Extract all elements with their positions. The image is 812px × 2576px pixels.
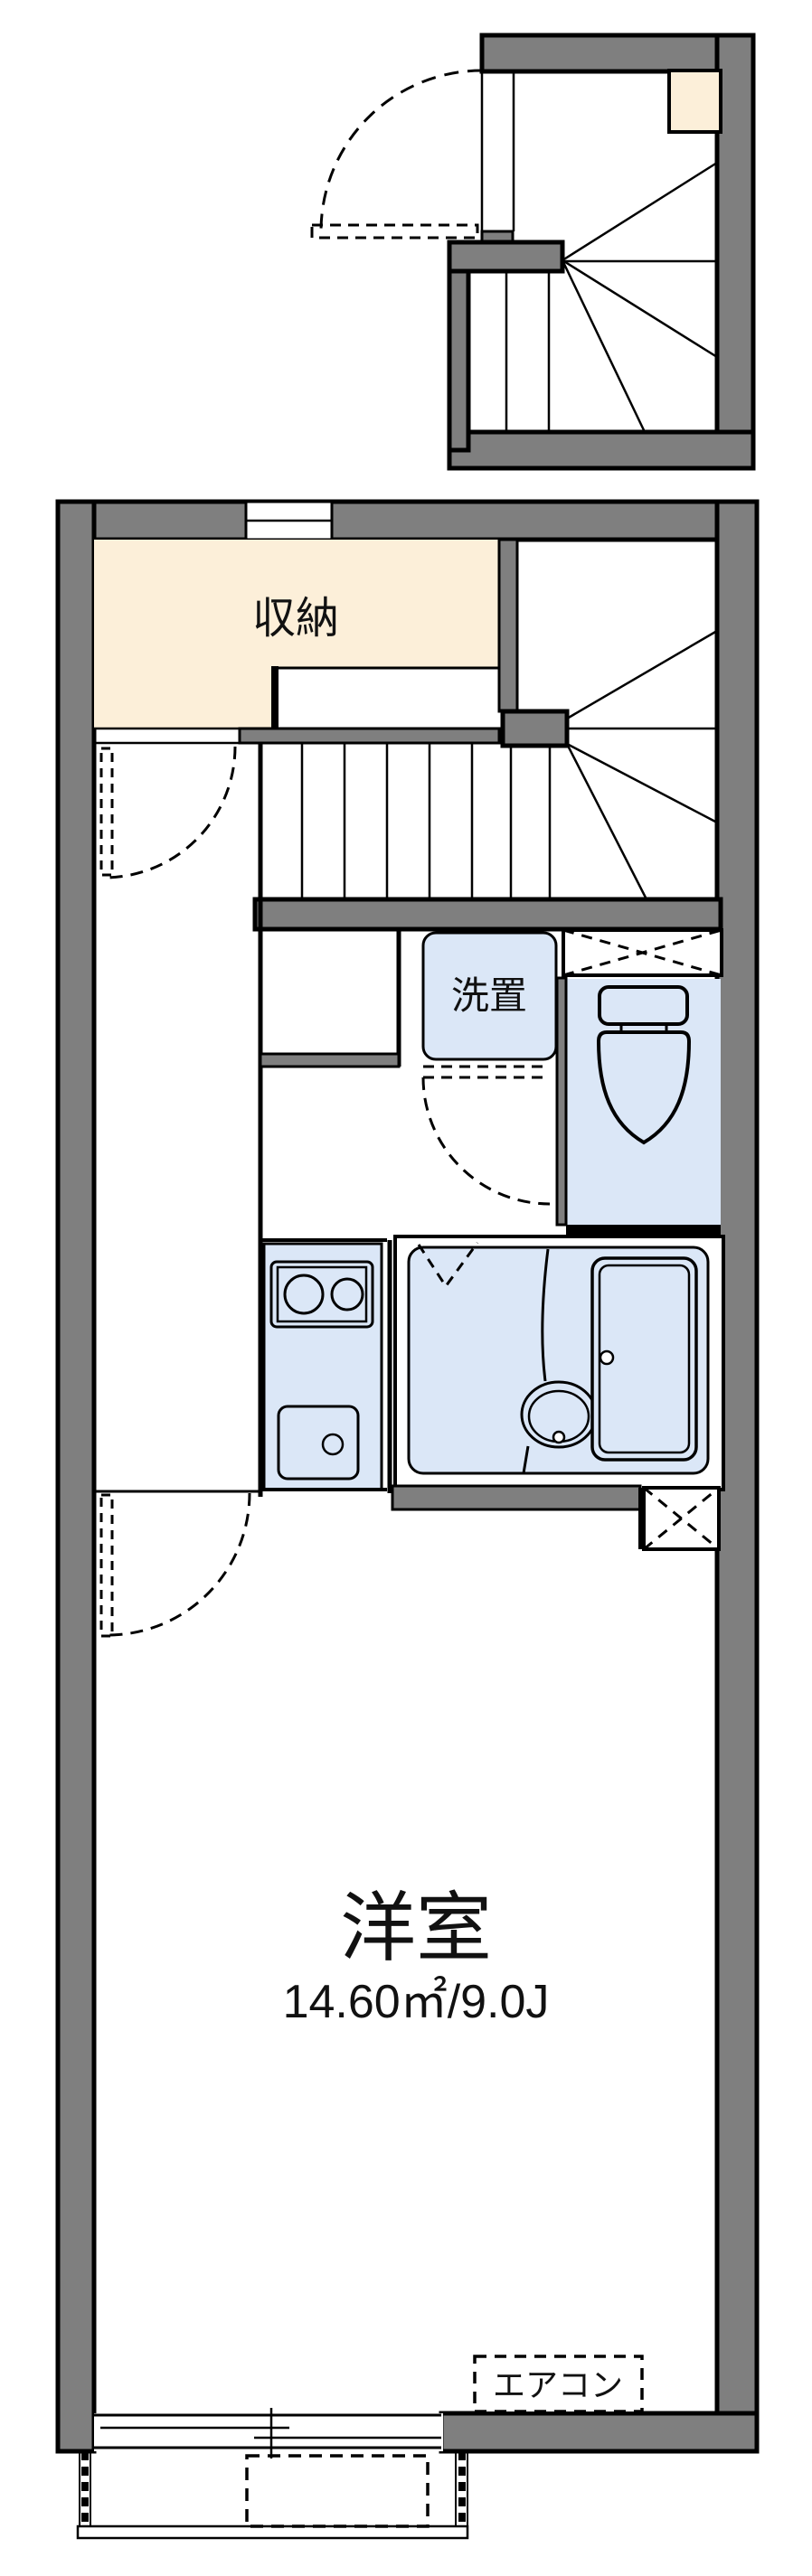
closet: 収納: [94, 540, 499, 878]
stair-treads-2f: [302, 743, 550, 899]
wall: [482, 35, 753, 71]
outdoor-unit-space: [247, 2456, 428, 2526]
wall: [58, 502, 94, 2451]
closet-door-leaf: [101, 748, 112, 875]
bathtub-drain: [600, 1351, 613, 1364]
room-door-leaf: [101, 1495, 112, 1636]
floor-plan-page: 収納: [0, 0, 812, 2576]
toilet-side-wall: [557, 978, 566, 1225]
basin-drain: [553, 1432, 564, 1443]
window-top: [246, 502, 332, 540]
main-unit: 収納: [58, 502, 757, 2538]
toilet-bottom-wall: [566, 1225, 721, 1235]
closet-lower-section: [275, 668, 499, 729]
stair-treads-1f: [506, 163, 717, 432]
washroom-stub-wall: [260, 1054, 399, 1067]
wall: [441, 2413, 757, 2451]
bathroom: [392, 1236, 723, 1509]
room-area-label: 14.60㎡/9.0J: [283, 1975, 550, 2028]
wall-under-stairs: [255, 899, 721, 929]
toilet-tank: [600, 987, 687, 1024]
bathroom-bottom-wall: [392, 1486, 640, 1509]
stair-newel-wall: [503, 711, 567, 746]
kitchen-sink: [279, 1406, 358, 1479]
aircon-label: エアコン: [493, 2366, 623, 2403]
stove-burner: [285, 1275, 323, 1313]
laundry-space: 洗置: [423, 933, 556, 1059]
kitchen: [260, 1240, 390, 1493]
balcony: [78, 2451, 467, 2538]
closet-label: 収納: [252, 595, 339, 643]
wall: [449, 432, 753, 468]
window-bottom-sliding: [94, 2408, 443, 2458]
toilet-door-swing-arc: [423, 1077, 550, 1204]
entrance-step-box: [669, 71, 721, 132]
western-room: 洋室 14.60㎡/9.0J エアコン: [94, 1491, 642, 2411]
stove-burner: [332, 1279, 363, 1310]
entrance-door-leaf: [312, 225, 477, 238]
sink-drain: [323, 1434, 343, 1454]
pipe-space: [638, 1488, 719, 1549]
laundry-label: 洗置: [451, 974, 527, 1017]
closet-door-swing-arc: [104, 747, 235, 878]
room-label: 洋室: [340, 1885, 492, 1970]
stair-side-wall: [499, 540, 517, 711]
entrance-stair-structure: [312, 35, 753, 468]
balcony-edge: [78, 2526, 467, 2538]
wall: [58, 502, 757, 540]
closet-bottom-wall: [240, 729, 499, 743]
floor-plan-drawing: 収納: [0, 0, 812, 2576]
room-door-swing-arc: [108, 1493, 250, 1635]
entrance-door-swing-arc: [321, 71, 482, 231]
stair-newel-wall: [449, 242, 562, 271]
